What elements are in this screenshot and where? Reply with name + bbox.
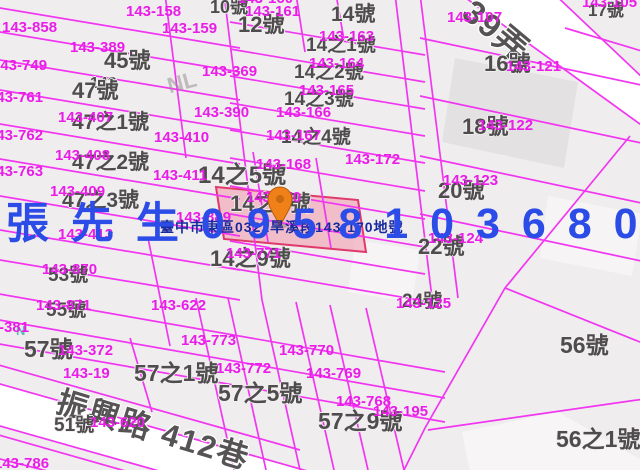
map-canvas[interactable]: 振興路 412巷39弄NLN10號12號14號14之1號14之2號14之3號14…	[0, 0, 640, 470]
overlay-layer: 臺中市東區0322旱溪段143-170地號 張 先 生 0 9 5 8 1 0 …	[0, 0, 640, 470]
contact-watermark: 張 先 生 0 9 5 8 1 0 3 6 8 0	[6, 203, 640, 246]
